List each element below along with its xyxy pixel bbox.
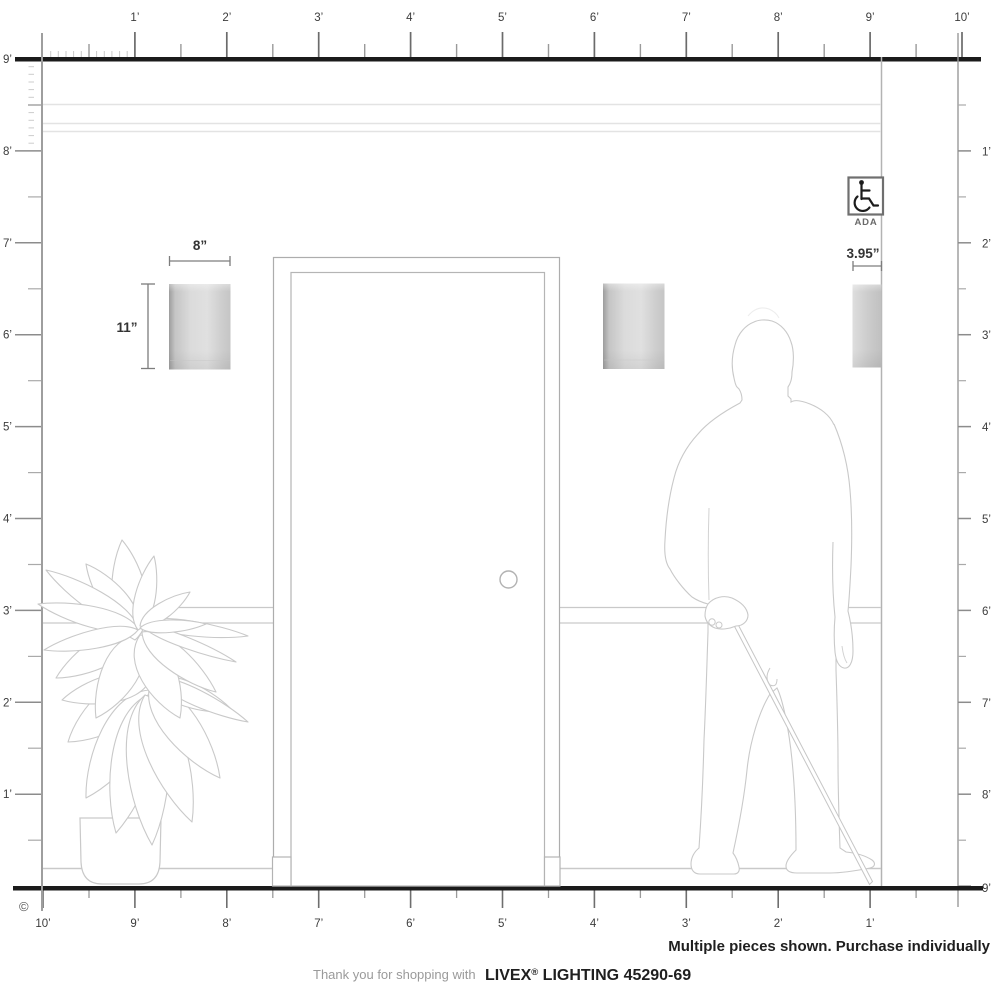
svg-text:6’: 6’ xyxy=(3,330,12,342)
svg-text:LIVEX® LIGHTING 45290-69: LIVEX® LIGHTING 45290-69 xyxy=(485,967,691,984)
svg-text:3’: 3’ xyxy=(314,12,323,24)
svg-text:Thank you for shopping with: Thank you for shopping with xyxy=(313,967,476,982)
svg-text:7’: 7’ xyxy=(682,12,691,24)
svg-text:6’: 6’ xyxy=(590,12,599,24)
svg-text:4’: 4’ xyxy=(590,918,599,930)
svg-text:4’: 4’ xyxy=(982,422,991,434)
svg-text:1’: 1’ xyxy=(866,918,875,930)
svg-text:4’: 4’ xyxy=(406,12,415,24)
svg-text:ADA: ADA xyxy=(855,217,878,228)
svg-text:2’: 2’ xyxy=(982,238,991,250)
svg-text:8”: 8” xyxy=(193,238,207,253)
svg-text:1’: 1’ xyxy=(3,789,12,801)
svg-text:10’: 10’ xyxy=(954,12,969,24)
svg-text:9’: 9’ xyxy=(982,883,991,895)
svg-text:2’: 2’ xyxy=(222,12,231,24)
svg-text:5’: 5’ xyxy=(498,918,507,930)
svg-text:8’: 8’ xyxy=(222,918,231,930)
svg-text:3.95”: 3.95” xyxy=(846,246,879,261)
svg-text:Multiple pieces shown. Purchas: Multiple pieces shown. Purchase individu… xyxy=(668,938,990,955)
svg-text:5’: 5’ xyxy=(982,514,991,526)
svg-text:6’: 6’ xyxy=(406,918,415,930)
svg-text:10’: 10’ xyxy=(35,918,50,930)
svg-text:1’: 1’ xyxy=(130,12,139,24)
svg-text:7’: 7’ xyxy=(3,238,12,250)
svg-text:8’: 8’ xyxy=(774,12,783,24)
svg-text:8’: 8’ xyxy=(982,790,991,802)
svg-text:©: © xyxy=(19,899,29,914)
svg-text:9’: 9’ xyxy=(866,12,875,24)
svg-text:3’: 3’ xyxy=(3,605,12,617)
svg-text:6’: 6’ xyxy=(982,606,991,618)
svg-text:4’: 4’ xyxy=(3,514,12,526)
svg-text:9’: 9’ xyxy=(130,918,139,930)
svg-text:7’: 7’ xyxy=(314,918,323,930)
svg-text:9’: 9’ xyxy=(3,54,12,66)
svg-text:8’: 8’ xyxy=(3,146,12,158)
svg-text:2’: 2’ xyxy=(3,697,12,709)
svg-text:1’: 1’ xyxy=(982,146,991,158)
svg-text:7’: 7’ xyxy=(982,698,991,710)
svg-text:5’: 5’ xyxy=(498,12,507,24)
svg-text:11”: 11” xyxy=(116,320,137,335)
svg-text:3’: 3’ xyxy=(682,918,691,930)
svg-text:5’: 5’ xyxy=(3,422,12,434)
svg-text:3’: 3’ xyxy=(982,330,991,342)
svg-text:2’: 2’ xyxy=(774,918,783,930)
